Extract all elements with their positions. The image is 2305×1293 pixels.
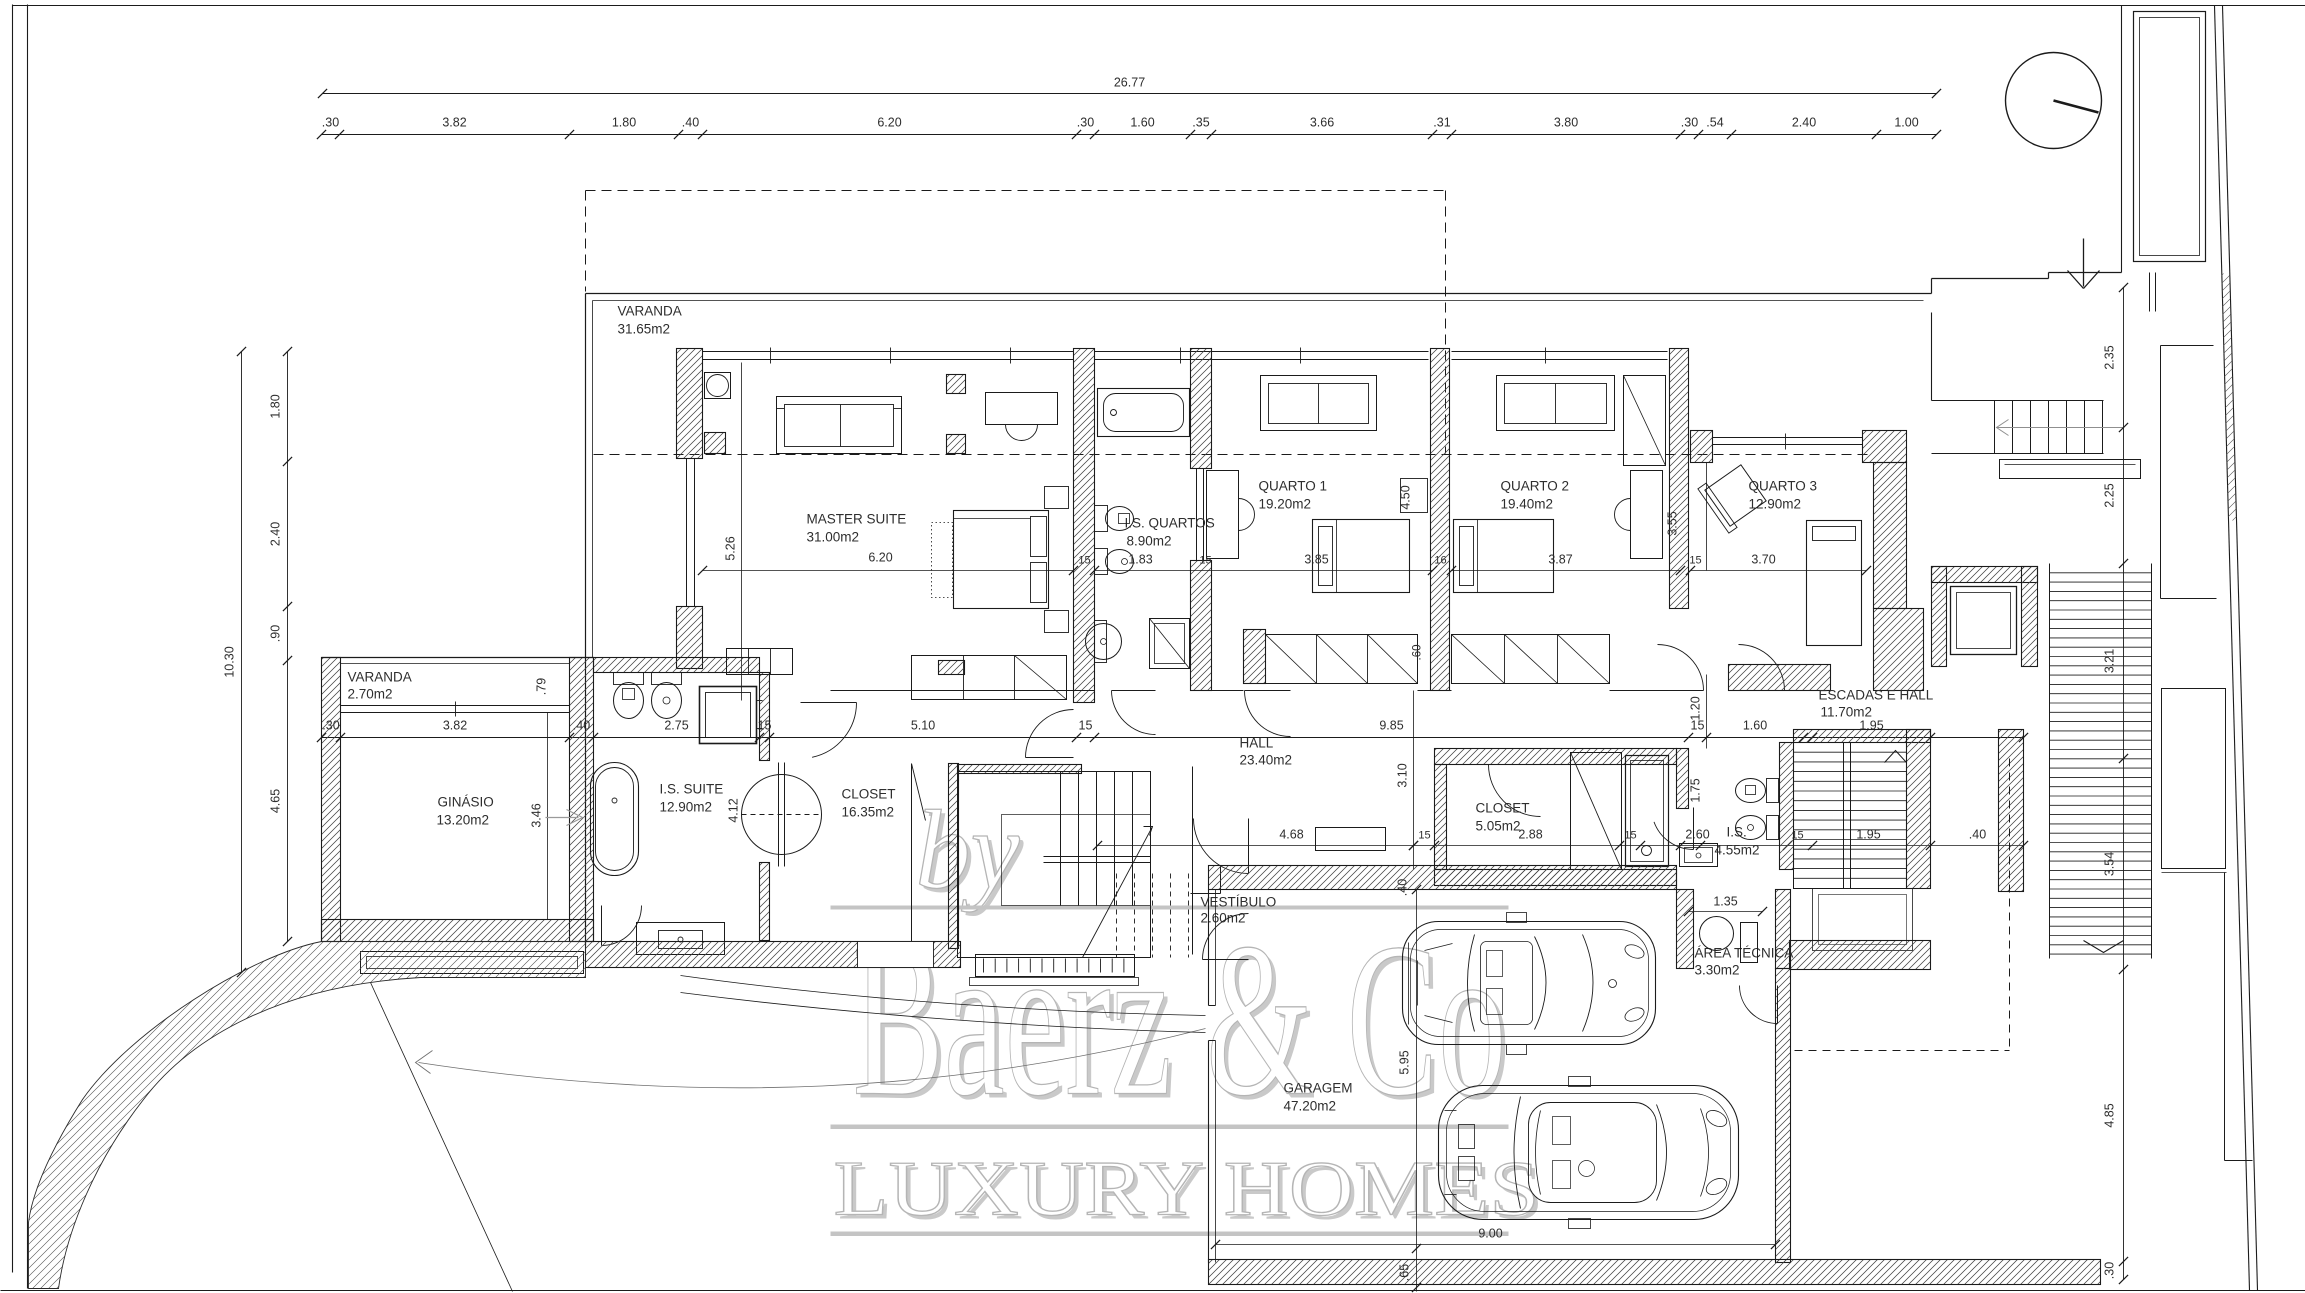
svg-text:2.70m2: 2.70m2: [348, 687, 393, 702]
svg-text:31.65m2: 31.65m2: [618, 322, 671, 337]
svg-text:I.S. SUITE: I.S. SUITE: [660, 782, 724, 797]
svg-text:13.20m2: 13.20m2: [437, 813, 490, 828]
svg-text:2.60m2: 2.60m2: [1201, 911, 1246, 926]
svg-text:10.30: 10.30: [223, 646, 237, 677]
svg-text:3.82: 3.82: [442, 116, 466, 130]
svg-text:4.50: 4.50: [1399, 485, 1413, 509]
svg-text:1.80: 1.80: [612, 116, 636, 130]
svg-text:3.82: 3.82: [443, 719, 467, 733]
svg-text:GARAGEM: GARAGEM: [1284, 1081, 1353, 1096]
svg-text:12.90m2: 12.90m2: [660, 800, 713, 815]
svg-text:1.80: 1.80: [269, 394, 283, 418]
svg-text:26.77: 26.77: [1114, 76, 1145, 90]
svg-text:.40: .40: [1969, 828, 1986, 842]
svg-text:3.85: 3.85: [1304, 553, 1328, 567]
svg-text:QUARTO 2: QUARTO 2: [1501, 479, 1570, 494]
svg-text:VARANDA: VARANDA: [618, 304, 682, 319]
svg-text:1.00: 1.00: [1894, 116, 1918, 130]
svg-text:VESTÍBULO: VESTÍBULO: [1201, 895, 1277, 910]
svg-text:4.12: 4.12: [727, 798, 741, 822]
svg-text:1.60: 1.60: [1130, 116, 1154, 130]
svg-text:4.68: 4.68: [1279, 828, 1303, 842]
svg-text:9.00: 9.00: [1478, 1227, 1502, 1241]
svg-text:2.88: 2.88: [1518, 828, 1542, 842]
svg-text:3.46: 3.46: [530, 803, 544, 827]
svg-text:6.20: 6.20: [877, 116, 901, 130]
svg-text:.54: .54: [1706, 116, 1723, 130]
svg-text:1.75: 1.75: [1689, 778, 1703, 802]
svg-text:4.65: 4.65: [269, 789, 283, 813]
svg-text:2.60: 2.60: [1685, 828, 1709, 842]
svg-text:4.85: 4.85: [2103, 1103, 2117, 1127]
svg-text:.31: .31: [1433, 116, 1450, 130]
svg-text:2.35: 2.35: [2103, 345, 2117, 369]
svg-text:.65: .65: [1398, 1264, 1412, 1281]
svg-text:9.85: 9.85: [1379, 719, 1403, 733]
svg-text:19.40m2: 19.40m2: [1501, 497, 1554, 512]
svg-text:.79: .79: [535, 678, 549, 695]
svg-text:VARANDA: VARANDA: [348, 670, 412, 685]
svg-text:3.21: 3.21: [2103, 649, 2117, 673]
svg-text:1.60: 1.60: [1743, 719, 1767, 733]
svg-text:by: by: [916, 789, 1020, 913]
svg-text:1.35: 1.35: [1713, 895, 1737, 909]
svg-text:15: 15: [1689, 555, 1701, 567]
svg-text:ÁREA TÉCNICA: ÁREA TÉCNICA: [1695, 946, 1794, 961]
svg-text:3.70: 3.70: [1751, 553, 1775, 567]
svg-text:3.10: 3.10: [1396, 763, 1410, 787]
svg-text:5.05m2: 5.05m2: [1476, 819, 1521, 834]
svg-text:.40: .40: [682, 116, 699, 130]
svg-text:.30: .30: [1077, 116, 1094, 130]
svg-text:3.66: 3.66: [1310, 116, 1334, 130]
svg-text:.30: .30: [1681, 116, 1698, 130]
svg-text:3.55: 3.55: [1666, 511, 1680, 535]
svg-text:15: 15: [1418, 830, 1430, 842]
svg-text:2.40: 2.40: [1792, 116, 1816, 130]
svg-text:8.90m2: 8.90m2: [1127, 534, 1172, 549]
svg-text:MASTER SUITE: MASTER SUITE: [807, 512, 907, 527]
svg-text:5.10: 5.10: [911, 719, 935, 733]
svg-text:2.40: 2.40: [269, 522, 283, 546]
svg-text:3.54: 3.54: [2103, 852, 2117, 876]
svg-text:CLOSET: CLOSET: [842, 787, 896, 802]
svg-text:1.20: 1.20: [1689, 696, 1703, 720]
svg-text:ESCADAS E HALL: ESCADAS E HALL: [1819, 688, 1934, 703]
svg-text:31.00m2: 31.00m2: [807, 530, 860, 545]
svg-text:15: 15: [1078, 555, 1090, 567]
svg-text:15: 15: [1199, 555, 1211, 567]
svg-text:11.70m2: 11.70m2: [1821, 705, 1873, 720]
svg-text:.35: .35: [1192, 116, 1209, 130]
svg-text:.60: .60: [1412, 645, 1424, 661]
svg-text:4.55m2: 4.55m2: [1715, 843, 1760, 858]
svg-text:1.83: 1.83: [1128, 553, 1152, 567]
svg-text:3.87: 3.87: [1548, 553, 1572, 567]
svg-text:12.90m2: 12.90m2: [1749, 497, 1802, 512]
svg-text:.30: .30: [2103, 1262, 2117, 1279]
svg-text:5.95: 5.95: [1398, 1050, 1412, 1074]
svg-text:15: 15: [1079, 719, 1093, 733]
svg-text:LUXURY HOMES: LUXURY HOMES: [834, 1145, 1540, 1232]
svg-text:6.20: 6.20: [868, 551, 892, 565]
svg-text:2.75: 2.75: [664, 719, 688, 733]
svg-text:16.35m2: 16.35m2: [842, 805, 895, 820]
svg-text:2.25: 2.25: [2103, 483, 2117, 507]
svg-text:.30: .30: [322, 116, 339, 130]
svg-text:I.S. QUARTOS: I.S. QUARTOS: [1125, 516, 1215, 531]
svg-text:3.80: 3.80: [1554, 116, 1578, 130]
svg-text:GINÁSIO: GINÁSIO: [438, 795, 494, 810]
svg-text:47.20m2: 47.20m2: [1284, 1099, 1337, 1114]
svg-text:3.30m2: 3.30m2: [1695, 963, 1740, 978]
svg-text:23.40m2: 23.40m2: [1240, 753, 1293, 768]
svg-text:5.26: 5.26: [724, 536, 738, 560]
svg-text:16: 16: [1434, 555, 1446, 567]
svg-text:.90: .90: [269, 625, 283, 642]
svg-text:QUARTO 1: QUARTO 1: [1259, 479, 1328, 494]
svg-text:19.20m2: 19.20m2: [1259, 497, 1312, 512]
